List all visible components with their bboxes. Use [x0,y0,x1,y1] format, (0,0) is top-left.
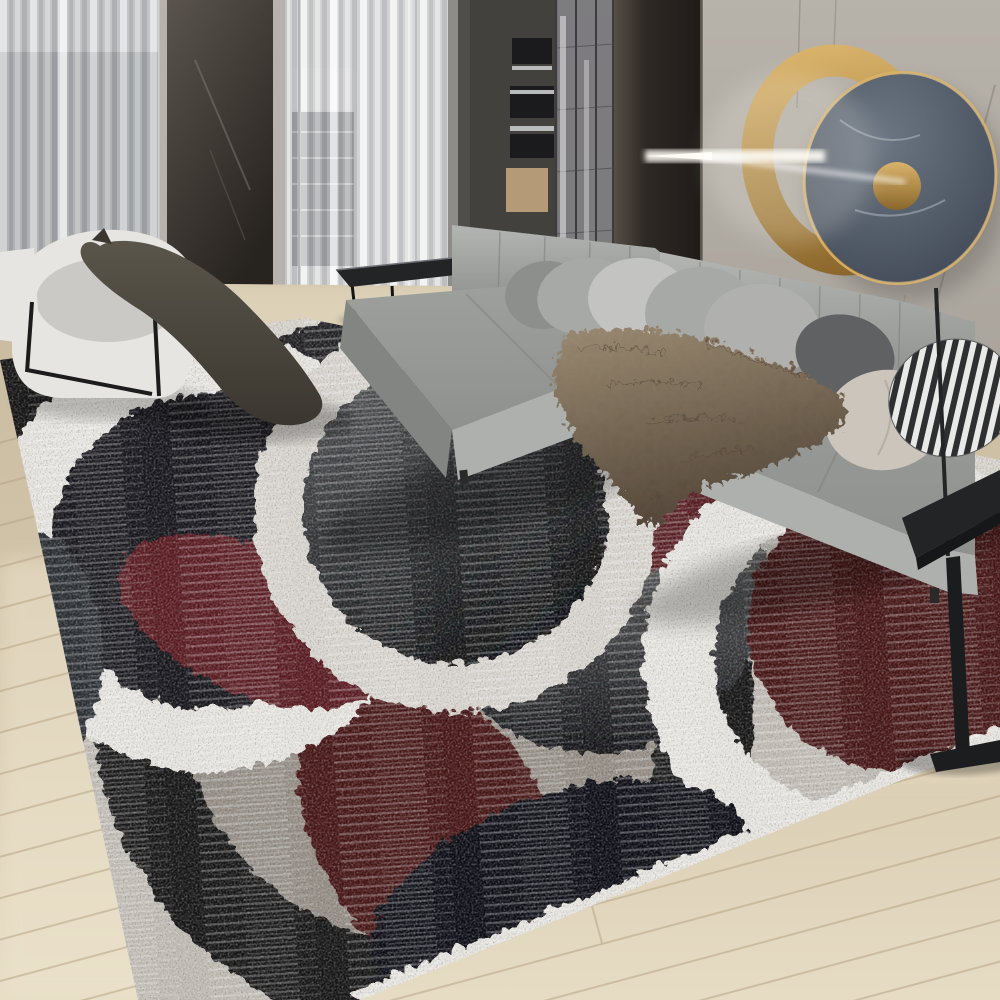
scene-canvas [0,0,1000,1000]
chair-arm [0,248,40,345]
curtain-fold-highlight [408,0,415,292]
appliance-trim [510,126,554,131]
living-room-photo [0,0,1000,1000]
gold-medallion [873,162,921,210]
coffee-machine [512,38,552,64]
glass-reflection [584,60,589,260]
curtain-fold-highlight [330,0,338,292]
oak-cabinet-door [506,168,548,212]
column-frame [273,0,283,298]
appliance-trim [512,66,552,70]
oven-handle [510,90,554,94]
column-body [167,0,273,298]
warming-drawer [510,134,554,158]
